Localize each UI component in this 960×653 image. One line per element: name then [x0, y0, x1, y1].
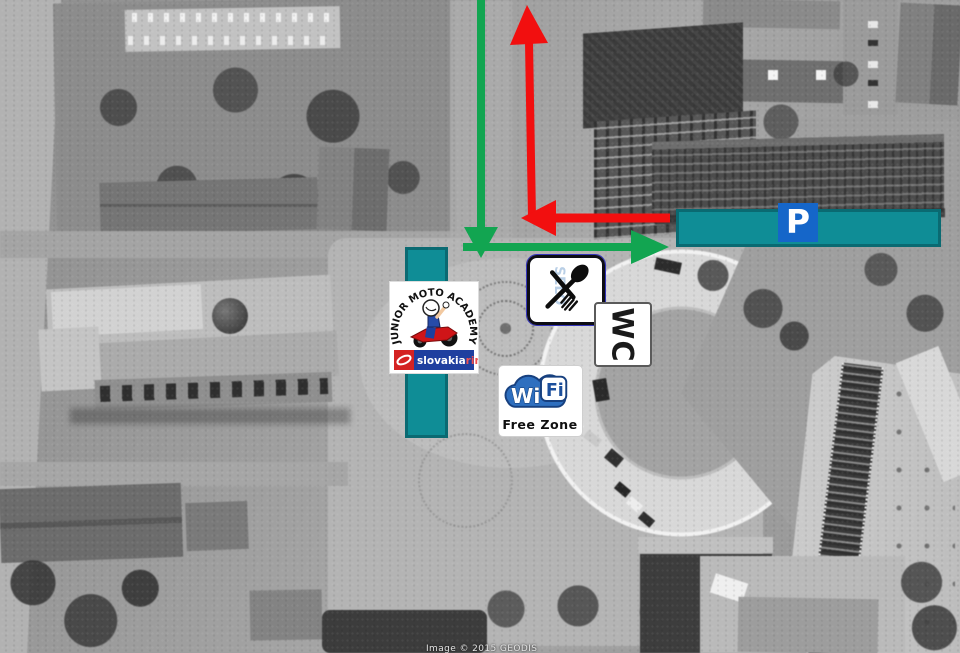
tree-cluster [0, 545, 165, 653]
plaza-circle-center [500, 323, 511, 334]
plaza-circle-lower [418, 433, 513, 528]
junior-moto-academy-graphic: JUNIOR MOTO ACADEMY slovakiaring [390, 282, 478, 373]
promo-event-map: P JUNIOR MOTO ACADEMY [0, 0, 960, 653]
small-building [250, 589, 323, 640]
vertical-road [450, 0, 512, 252]
tree-cluster [688, 248, 813, 358]
junior-moto-academy-logo: JUNIOR MOTO ACADEMY slovakiaring [390, 282, 478, 373]
pitched-roof [317, 147, 390, 231]
wifi-fi-label: Fi [546, 381, 564, 401]
bottom-roof-small [185, 501, 249, 551]
tree-cluster [848, 232, 958, 357]
museum-shadow [70, 408, 350, 424]
parking-sign-label: P [786, 205, 810, 238]
aerial-photo [0, 0, 960, 653]
tree-cluster [896, 552, 960, 653]
wc-sign: WC [594, 302, 652, 367]
museum-dome [212, 298, 248, 334]
parking-cars-row [128, 36, 333, 45]
slovakiaring-wordmark: slovakiaring [417, 355, 478, 367]
museum-west-wing [38, 326, 101, 391]
imagery-attribution: Image © 2015 GEODIS [426, 644, 537, 653]
wifi-icon: Wi Fi Free Zone [499, 366, 582, 436]
fork-and-spoon-crossed-icon: SELO [533, 260, 599, 318]
wifi-subtitle: Free Zone [502, 417, 577, 432]
moto-rider-cartoon-icon [411, 300, 458, 348]
bottom-right-building [738, 597, 879, 653]
roof-ridge [100, 204, 318, 207]
parking-cars-row [132, 13, 332, 22]
parking-sign: P [778, 203, 818, 242]
slovakiaring-banner: slovakiaring [394, 350, 478, 370]
wifi-wi-label: Wi [511, 384, 541, 408]
walkway [638, 537, 773, 553]
wifi-free-zone-sign: Wi Fi Free Zone [498, 365, 583, 437]
wc-label: WC [606, 307, 640, 362]
